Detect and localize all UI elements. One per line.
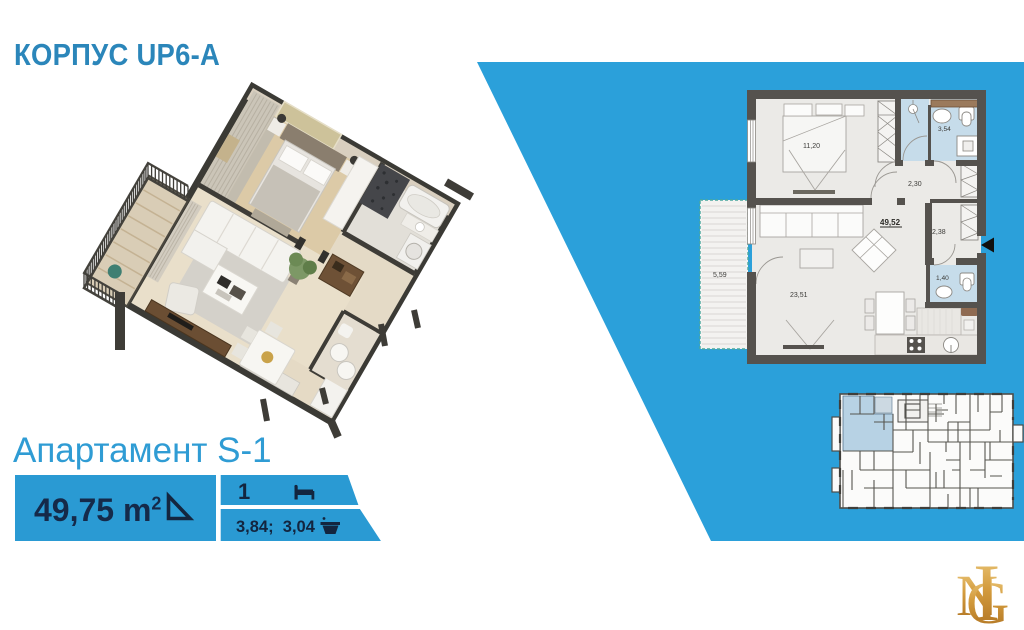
svg-text:49,52: 49,52 [880, 218, 901, 227]
svg-text:1,40: 1,40 [936, 275, 949, 282]
svg-text:3,54: 3,54 [938, 126, 951, 133]
svg-text:11,20: 11,20 [803, 143, 820, 150]
svg-text:23,51: 23,51 [790, 292, 808, 299]
svg-text:2,38: 2,38 [932, 229, 946, 236]
svg-text:5,59: 5,59 [713, 272, 727, 279]
svg-text:2,30: 2,30 [908, 181, 922, 188]
svg-text:I: I [973, 547, 1000, 630]
